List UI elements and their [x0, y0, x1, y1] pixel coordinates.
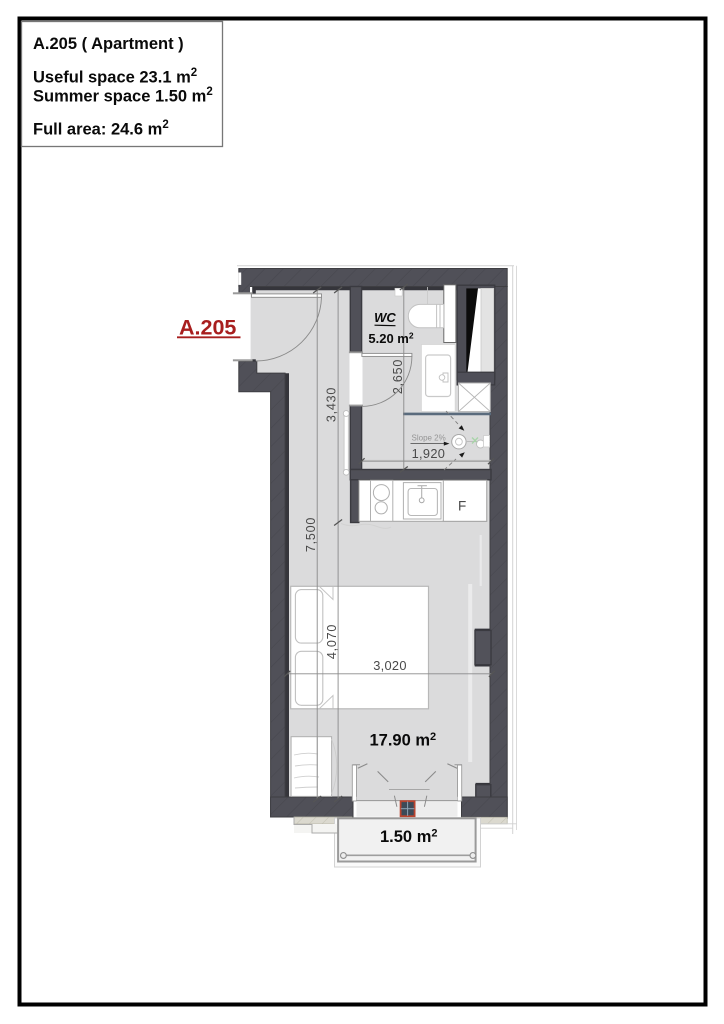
- svg-text:A.205 ( Apartment ): A.205 ( Apartment ): [33, 35, 184, 53]
- svg-text:3,430: 3,430: [325, 387, 339, 422]
- svg-text:3,020: 3,020: [373, 658, 407, 673]
- svg-text:A.205: A.205: [179, 316, 236, 340]
- svg-text:WC: WC: [374, 310, 396, 325]
- svg-text:4,070: 4,070: [325, 624, 339, 659]
- svg-text:5.20 m2: 5.20 m2: [368, 331, 413, 347]
- svg-text:7,500: 7,500: [304, 517, 318, 552]
- svg-text:F: F: [458, 499, 466, 514]
- svg-text:Slope 2%: Slope 2%: [412, 434, 446, 443]
- svg-text:Full area: 24.6 m2: Full area: 24.6 m2: [33, 119, 169, 139]
- svg-text:Useful space 23.1 m2: Useful space 23.1 m2: [33, 67, 197, 87]
- svg-text:17.90 m2: 17.90 m2: [370, 731, 437, 750]
- svg-text:2,650: 2,650: [391, 359, 405, 394]
- svg-text:Summer space 1.50 m2: Summer space 1.50 m2: [33, 86, 213, 106]
- svg-text:1.50 m2: 1.50 m2: [380, 828, 438, 847]
- svg-text:1,920: 1,920: [412, 446, 446, 461]
